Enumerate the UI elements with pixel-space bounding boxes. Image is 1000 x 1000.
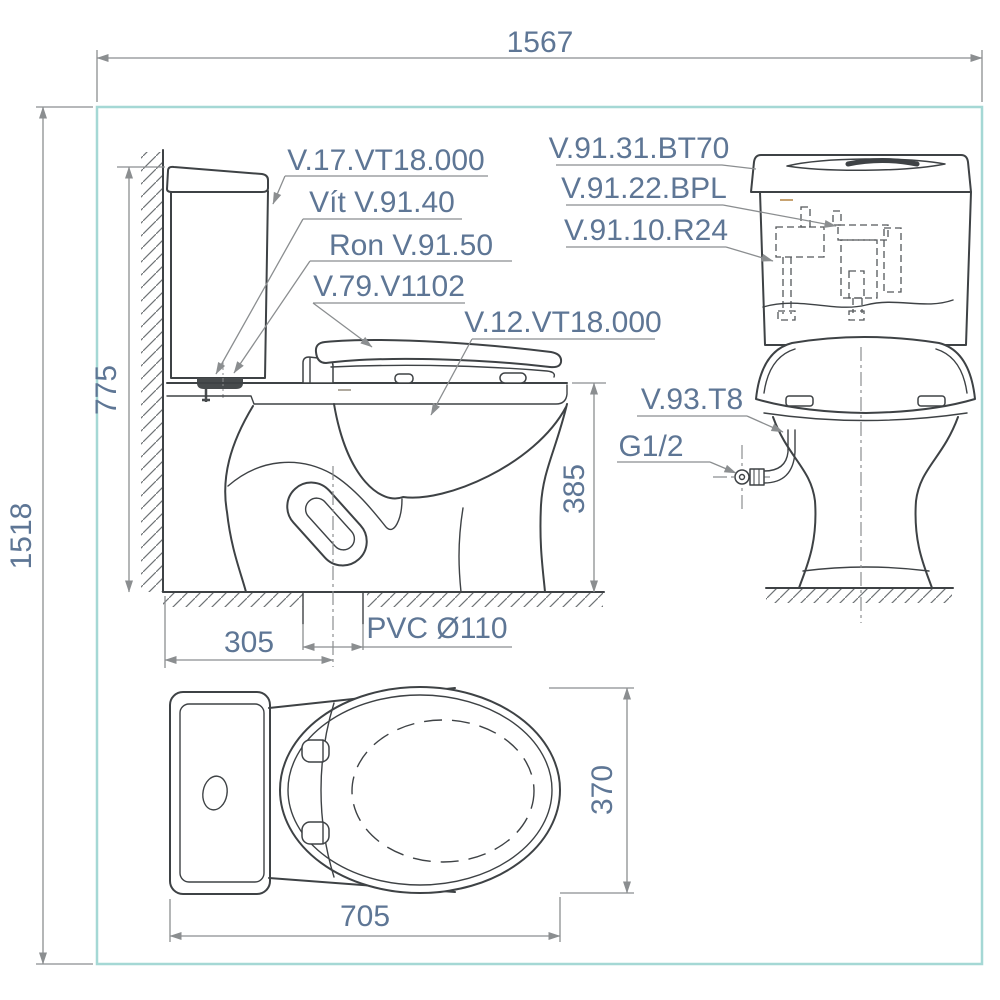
label-flush-valve: V.91.22.BPL [561,172,727,205]
technical-drawing: 1567 1518 775 385 305 PVC Ø110 705 370 V… [0,0,1000,1000]
drawing-svg: 1567 1518 775 385 305 PVC Ø110 705 370 V… [0,0,1000,1000]
seat-bumper-1 [395,374,413,383]
dimension-outlet-pipe: PVC Ø110 [303,612,512,647]
hinge-plan-top [302,740,329,762]
supply-valve [713,430,795,513]
dimension-depth: 705 [170,897,560,942]
inlet-circle [735,470,749,484]
dim-width: 370 [586,765,619,815]
dimension-width: 370 [549,688,634,893]
tank-lid-side [167,167,268,192]
pedestal-right-front [916,417,958,588]
seat-bumper-2 [500,373,526,383]
label-fill-valve: V.91.10.R24 [564,214,728,247]
dim-rough-in: 305 [224,626,274,659]
siphon-recess-outer [277,473,376,576]
dim-bowl-height: 385 [558,464,591,514]
seat-hinge-cap-right [918,396,945,406]
tank-plan [170,692,270,894]
supply-nut [750,469,764,485]
label-bowl: V.12.VT18.000 [464,306,661,339]
seat-ring-front [764,413,967,421]
dimension-overall-width: 1567 [97,26,982,102]
floor-hatch-right [367,592,603,607]
label-water-inlet: G1/2 [618,430,683,463]
side-view [141,150,604,667]
label-tank: V.17.VT18.000 [287,144,484,177]
pedestal-base-curve [803,567,929,571]
seat-lid-side [316,340,561,367]
seat-plan-outer [280,687,560,893]
label-screw: Vít V.91.40 [309,186,455,219]
plan-view [170,687,560,894]
dim-outlet-pipe: PVC Ø110 [366,612,507,645]
supply-pipe [764,430,795,483]
dimension-overall-height: 1518 [5,107,93,964]
dim-tank-height: 775 [90,365,123,415]
front-view [713,155,975,623]
dim-depth: 705 [340,900,390,933]
dim-overall-height: 1518 [5,503,38,570]
label-gasket: Ron V.91.50 [329,229,493,262]
label-supply-hose: V.93.T8 [641,383,743,416]
bowl-interior [334,404,566,498]
bowl-front-inner [459,508,463,592]
floor-hatch-left [163,592,303,607]
pedestal-back-side [225,406,253,592]
wall-hatch [141,152,163,592]
label-seat-cover: V.79.V1102 [313,270,465,303]
dim-overall-width: 1567 [507,26,574,59]
seat-hinge-cap-left [786,396,813,406]
floor-hatch-front [766,588,952,603]
pedestal-left-front [773,417,815,588]
part-labels: V.17.VT18.000 Vít V.91.40 Ron V.91.50 V.… [216,132,836,473]
tank-side [171,191,268,378]
label-tank-lid: V.91.31.BT70 [549,132,730,165]
hinge-plan-bottom [302,822,329,844]
